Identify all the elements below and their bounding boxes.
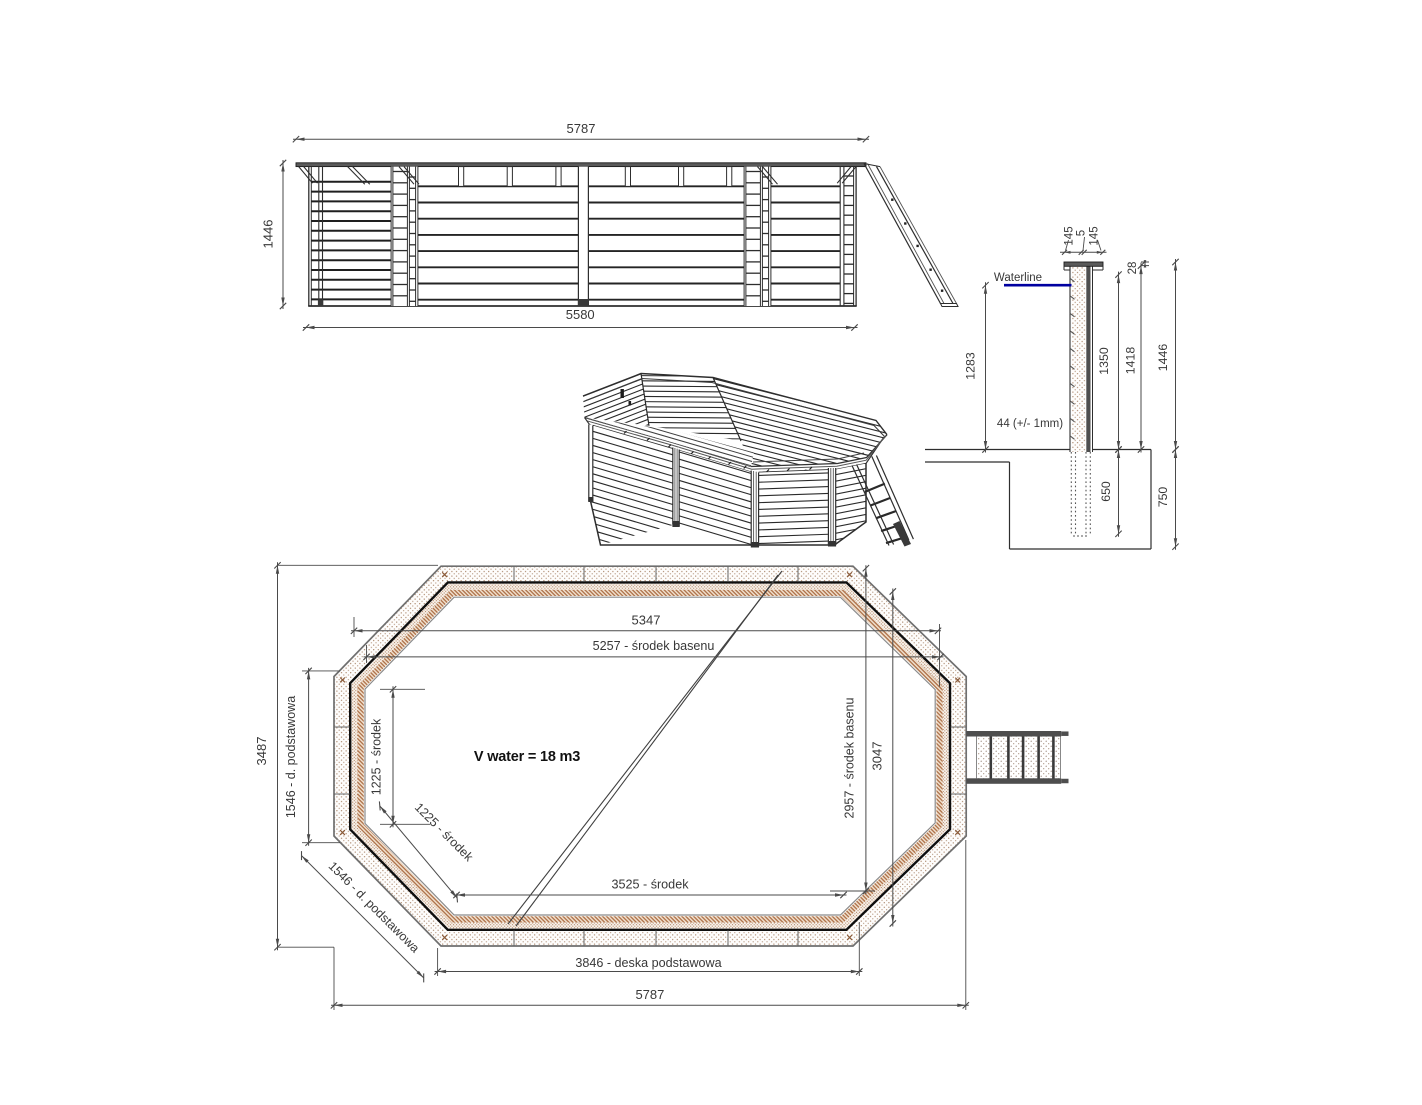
svg-text:5787: 5787 <box>567 121 596 136</box>
svg-text:44 (+/- 1mm): 44 (+/- 1mm) <box>997 418 1063 430</box>
svg-text:3047: 3047 <box>870 742 885 771</box>
svg-text:5580: 5580 <box>566 307 595 322</box>
svg-text:2957 - środek basenu: 2957 - środek basenu <box>843 697 857 818</box>
svg-text:5347: 5347 <box>632 613 661 628</box>
svg-text:5: 5 <box>1076 230 1088 236</box>
svg-text:5257 - środek basenu: 5257 - środek basenu <box>593 639 715 653</box>
svg-text:1446: 1446 <box>261 220 276 249</box>
svg-text:1225 - środek: 1225 - środek <box>370 718 384 795</box>
svg-text:V water = 18 m3: V water = 18 m3 <box>474 749 580 765</box>
svg-text:1350: 1350 <box>1097 347 1111 375</box>
svg-text:3525 - środek: 3525 - środek <box>611 878 689 892</box>
svg-text:3846 - deska podstawowa: 3846 - deska podstawowa <box>575 956 721 970</box>
svg-text:145: 145 <box>1064 226 1076 245</box>
svg-text:5787: 5787 <box>635 987 664 1002</box>
svg-text:Waterline: Waterline <box>994 272 1042 284</box>
svg-text:1418: 1418 <box>1124 347 1138 375</box>
svg-text:28: 28 <box>1127 262 1139 275</box>
svg-text:1446: 1446 <box>1156 344 1170 372</box>
svg-text:1283: 1283 <box>964 352 978 380</box>
svg-text:650: 650 <box>1099 481 1113 502</box>
svg-text:3487: 3487 <box>254 737 269 766</box>
svg-text:1546 - d. podstawowa: 1546 - d. podstawowa <box>284 696 298 818</box>
svg-text:750: 750 <box>1156 487 1170 508</box>
